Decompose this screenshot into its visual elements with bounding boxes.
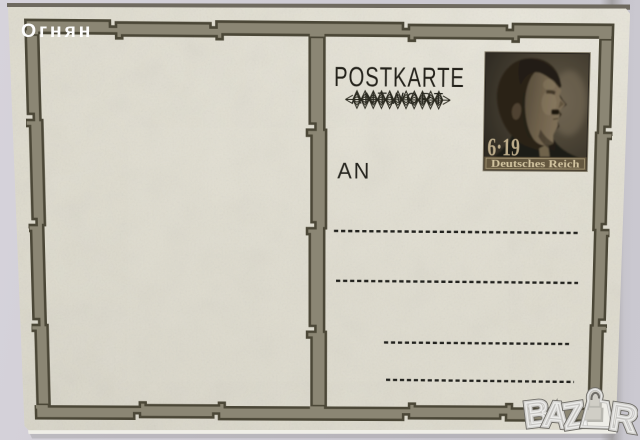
svg-text:R: R xyxy=(607,396,638,440)
svg-text:Deutsches Reich: Deutsches Reich xyxy=(490,157,580,169)
